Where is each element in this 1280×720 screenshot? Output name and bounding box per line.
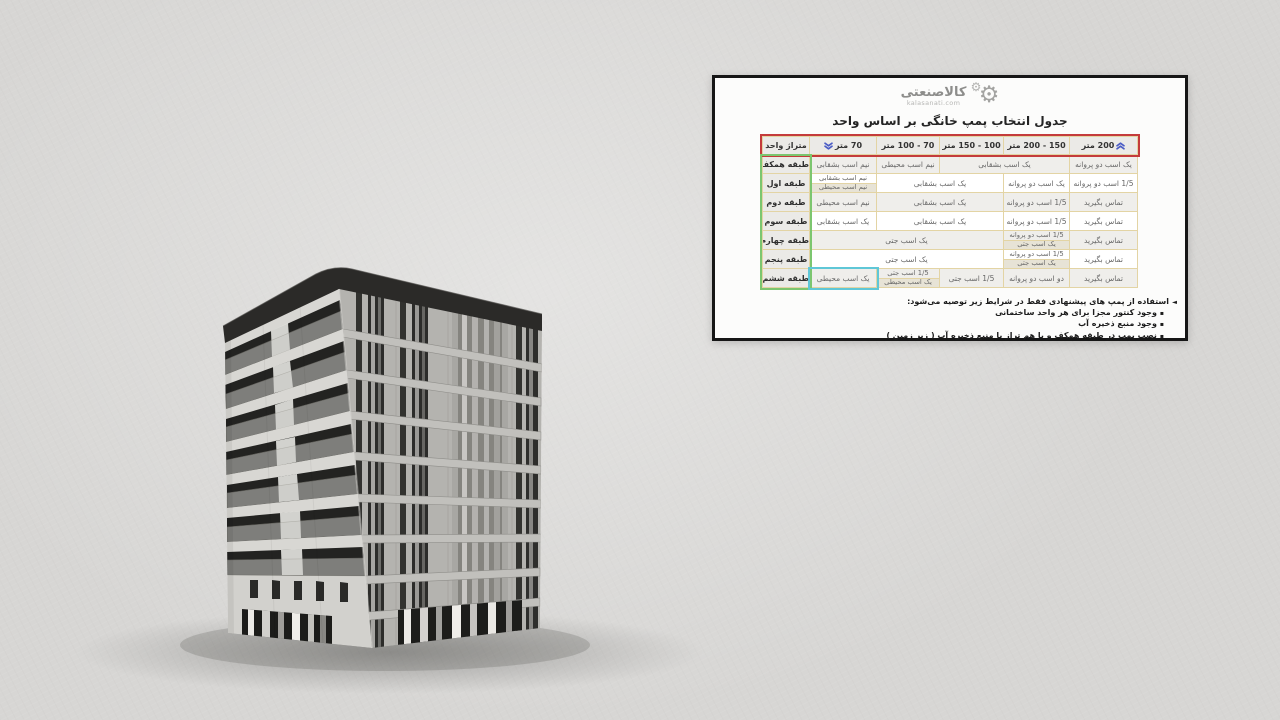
table-row-floor-3: طبقه سوم یک اسب بشقابی یک اسب بشقابی 1/5… xyxy=(762,212,1138,231)
table-subcell: نیم اسب بشقابی xyxy=(810,174,876,183)
table-row-floor-2: طبقه دوم نیم اسب محیطی یک اسب بشقابی 1/5… xyxy=(762,193,1138,212)
table-cell: یک اسب جتی xyxy=(810,231,1004,250)
table-subcell: 1/5 اسب دو پروانه xyxy=(1004,231,1069,240)
brand-name: کالاصنعتی xyxy=(901,86,967,100)
table-cell-highlighted: یک اسب محیطی xyxy=(810,269,877,288)
brand-logo: ⚙ ⚙ کالاصنعتی kalasanati.com xyxy=(715,82,1185,112)
triangle-bullet-icon: ◄ xyxy=(1172,298,1177,306)
table-subcell: یک اسب محیطی xyxy=(877,278,939,288)
table-row-floor-4: طبقه چهارم یک اسب جتی 1/5 اسب دو پروانه … xyxy=(762,231,1138,250)
column-header-150-200m: 150 - 200 متر xyxy=(1004,136,1070,155)
square-bullet-icon: ▪ xyxy=(1160,333,1164,340)
chevrons-up-icon xyxy=(1116,142,1125,150)
table-cell: یک اسب بشقابی xyxy=(877,193,1004,212)
table-cell-split: 1/5 اسب دو پروانه یک اسب جتی xyxy=(1004,231,1070,250)
building-right-facade xyxy=(339,285,542,655)
table-cell: یک اسب دو پروانه xyxy=(1004,174,1070,193)
table-subcell: 1/5 اسب دو پروانه xyxy=(1004,250,1069,259)
table-subcell: 1/5 اسب جتی xyxy=(877,269,939,278)
gear-icon-large: ⚙ xyxy=(979,84,1000,107)
floor-label: طبقه همکف xyxy=(762,155,810,174)
column-header-unit-area: متراژ واحد xyxy=(762,136,810,155)
table-cell: تماس بگیرید xyxy=(1070,269,1138,288)
floor-label: طبقه سوم xyxy=(762,212,810,231)
table-subcell: نیم اسب محیطی xyxy=(810,183,876,193)
note-item: ▪وجود کنتور مجزا برای هر واحد ساختمانی xyxy=(725,308,1177,320)
table-cell: یک اسب بشقابی xyxy=(810,212,877,231)
table-row-floor-1: طبقه اول نیم اسب بشقابی نیم اسب محیطی یک… xyxy=(762,174,1138,193)
table-cell: یک اسب بشقابی xyxy=(877,174,1004,193)
table-cell: تماس بگیرید xyxy=(1070,212,1138,231)
pump-table: متراژ واحد 70 متر 70 - 100 متر 100 - 150… xyxy=(762,136,1138,288)
floor-label: طبقه چهارم xyxy=(762,231,810,250)
table-cell: نیم اسب محیطی xyxy=(877,155,940,174)
table-subcell: یک اسب جتی xyxy=(1004,240,1069,250)
table-subcell: یک اسب جتی xyxy=(1004,259,1069,269)
header-row: متراژ واحد 70 متر 70 - 100 متر 100 - 150… xyxy=(762,136,1138,155)
gear-icon: ⚙ ⚙ xyxy=(969,83,999,111)
floor-label: طبقه اول xyxy=(762,174,810,193)
floor-label: طبقه دوم xyxy=(762,193,810,212)
pump-table-wrap: متراژ واحد 70 متر 70 - 100 متر 100 - 150… xyxy=(762,136,1138,288)
table-cell-split: 1/5 اسب جتی یک اسب محیطی xyxy=(877,269,940,288)
floor-label: طبقه ششم xyxy=(762,269,810,288)
table-row-ground-floor: طبقه همکف نیم اسب بشقابی نیم اسب محیطی ی… xyxy=(762,155,1138,174)
chevrons-down-icon xyxy=(824,142,833,150)
table-row-floor-5: طبقه پنجم یک اسب جتی 1/5 اسب دو پروانه ی… xyxy=(762,250,1138,269)
notes: ◄استفاده از پمپ های پیشنهادی فقط در شرای… xyxy=(715,288,1185,342)
table-cell: یک اسب دو پروانه xyxy=(1070,155,1138,174)
note-item: ▪وجود منبع ذخیره آب xyxy=(725,319,1177,331)
column-header-70-100m: 70 - 100 متر xyxy=(877,136,940,155)
table-cell: دو اسب دو پروانه xyxy=(1004,269,1070,288)
table-cell-split: 1/5 اسب دو پروانه یک اسب جتی xyxy=(1004,250,1070,269)
table-cell: تماس بگیرید xyxy=(1070,193,1138,212)
table-cell: 1/5 اسب جتی xyxy=(940,269,1004,288)
table-cell: 1/5 اسب دو پروانه xyxy=(1070,174,1138,193)
table-cell: 1/5 اسب دو پروانه xyxy=(1004,212,1070,231)
note-item: ▪نصب پمپ در طبقه همکف و یا هم تراز با من… xyxy=(725,331,1177,343)
table-cell: یک اسب بشقابی xyxy=(877,212,1004,231)
table-cell-split: نیم اسب بشقابی نیم اسب محیطی xyxy=(810,174,877,193)
table-cell: یک اسب جتی xyxy=(810,250,1004,269)
pump-selection-card: ⚙ ⚙ کالاصنعتی kalasanati.com جدول انتخاب… xyxy=(712,75,1188,341)
square-bullet-icon: ▪ xyxy=(1160,321,1164,328)
gear-icon-small: ⚙ xyxy=(971,81,982,93)
table-cell: نیم اسب محیطی xyxy=(810,193,877,212)
table-cell: 1/5 اسب دو پروانه xyxy=(1004,193,1070,212)
column-header-100-150m: 100 - 150 متر xyxy=(940,136,1004,155)
table-cell: نیم اسب بشقابی xyxy=(810,155,877,174)
table-cell: تماس بگیرید xyxy=(1070,250,1138,269)
floor-label: طبقه پنجم xyxy=(762,250,810,269)
column-header-200m: 200 متر xyxy=(1070,136,1138,155)
table-cell: یک اسب بشقابی xyxy=(940,155,1070,174)
scene: ⚙ ⚙ کالاصنعتی kalasanati.com جدول انتخاب… xyxy=(0,0,1280,720)
square-bullet-icon: ▪ xyxy=(1160,310,1164,317)
column-header-70m: 70 متر xyxy=(810,136,877,155)
table-cell: تماس بگیرید xyxy=(1070,231,1138,250)
table-row-floor-6: طبقه ششم یک اسب محیطی 1/5 اسب جتی یک اسب… xyxy=(762,269,1138,288)
brand-domain: kalasanati.com xyxy=(907,100,960,108)
notes-intro: ◄استفاده از پمپ های پیشنهادی فقط در شرای… xyxy=(725,297,1177,308)
table-title: جدول انتخاب پمپ خانگی بر اساس واحد xyxy=(715,114,1185,128)
